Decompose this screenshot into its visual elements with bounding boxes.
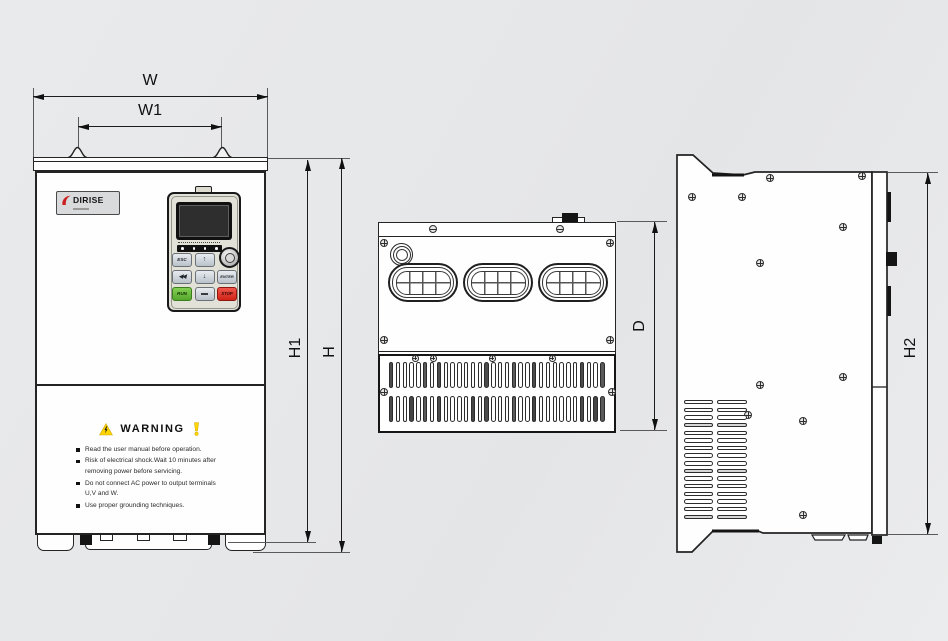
phillips-screw-icon [799, 511, 807, 519]
d-dimension-line [654, 222, 655, 430]
warning-item: Do not connect AC power to output termin… [75, 479, 221, 501]
vent-slot [717, 499, 747, 503]
side-vent-column [717, 400, 747, 519]
top-tab [562, 213, 578, 222]
phillips-screw-icon [688, 193, 696, 201]
vent-slot [684, 446, 713, 450]
h2-dimension-line [927, 173, 928, 534]
vent-slot [684, 499, 713, 503]
warning-item: Read the user manual before operation. [75, 445, 221, 456]
knockout-grid [396, 271, 451, 295]
vent-slot [389, 396, 393, 422]
keypad-screen [179, 205, 229, 237]
vent-slot [587, 396, 591, 422]
vent-slot [491, 362, 495, 388]
warning-item: Use proper grounding techniques. [75, 501, 221, 512]
vent-slot [525, 396, 529, 422]
vent-slot [444, 362, 448, 388]
knockout-grid [471, 271, 526, 295]
multifunction-label-bar [201, 293, 208, 295]
vent-slot [717, 415, 747, 419]
vent-slot [684, 507, 713, 511]
vent-slot [717, 400, 747, 404]
phillips-screw-icon [606, 239, 614, 247]
vent-slot [717, 492, 747, 496]
warning-item: Risk of electrical shock.Wait 10 minutes… [75, 456, 221, 478]
h1-dimension-label: H1 [287, 331, 305, 365]
dimension-drawing: W W1 [0, 0, 948, 641]
vent-slot [484, 362, 488, 388]
vent-slot [553, 396, 557, 422]
bottom-foot [812, 535, 845, 540]
skirt-clip-right [208, 534, 220, 545]
vent-slot [717, 438, 747, 442]
led-indicator [215, 247, 218, 250]
skirt-tooth [137, 534, 150, 541]
top-mounting-plate [33, 157, 268, 171]
front-view: W W1 [0, 0, 360, 600]
vent-slot [464, 362, 468, 388]
skirt-clip-left [80, 534, 92, 545]
vent-slot [684, 408, 713, 412]
vent-slot [389, 362, 393, 388]
vent-slot [478, 396, 482, 422]
vent-slot [587, 362, 591, 388]
vent-slot [416, 396, 420, 422]
front-panel-latch [886, 252, 897, 266]
cable-knockouts [388, 263, 608, 302]
vent-slot [450, 362, 454, 388]
vent-slot [505, 362, 509, 388]
run-button[interactable]: RUN [172, 287, 192, 301]
vent-slot [684, 515, 713, 519]
vent-slot [684, 484, 713, 488]
phillips-screw-icon [858, 172, 866, 180]
vent-slot [450, 396, 454, 422]
h-extension-top [268, 158, 350, 159]
shift-button[interactable]: ◀◀ [172, 270, 192, 284]
brand-subtext-bar [73, 208, 89, 210]
d-dimension-label: D [631, 309, 649, 343]
vent-slot [457, 362, 461, 388]
keypad-display [176, 202, 232, 240]
skirt-tooth [100, 534, 113, 541]
led-strip [177, 245, 222, 252]
front-panel-edge [872, 172, 887, 535]
vent-slot [518, 362, 522, 388]
vent-slot [559, 396, 563, 422]
vent-slot [539, 362, 543, 388]
cable-knockout [538, 263, 608, 302]
vent-slot [423, 362, 427, 388]
vent-slot [717, 461, 747, 465]
bottom-clip [872, 536, 882, 544]
vent-slot [437, 396, 441, 422]
phillips-screw-icon [380, 239, 388, 247]
warning-list: Read the user manual before operation. R… [75, 445, 221, 512]
phillips-screw-icon [430, 355, 437, 362]
vent-slot [580, 362, 584, 388]
slotted-screw-icon [556, 225, 564, 233]
vent-slot [580, 396, 584, 422]
vent-slot [498, 396, 502, 422]
keypad-knob[interactable] [219, 247, 240, 268]
bottom-foot [848, 535, 868, 540]
h-extension-bottom [253, 552, 350, 553]
phillips-screw-icon [608, 388, 616, 396]
vent-slot [593, 396, 597, 422]
w-dimension-label: W [133, 72, 167, 90]
h-dimension-line [341, 158, 342, 552]
enter-button[interactable]: ENTER [217, 270, 237, 284]
vent-slot [684, 453, 713, 457]
vent-slot [566, 396, 570, 422]
vent-slot [532, 362, 536, 388]
vent-slot [430, 362, 434, 388]
vent-slot [684, 476, 713, 480]
phillips-screw-icon [489, 355, 496, 362]
vent-slot [396, 362, 400, 388]
vent-slot [505, 396, 509, 422]
h2-dimension-label: H2 [902, 331, 920, 365]
vent-slot [498, 362, 502, 388]
vent-slot [593, 362, 597, 388]
vent-slot [457, 396, 461, 422]
vent-slot [717, 507, 747, 511]
vent-slot [717, 476, 747, 480]
knockout-grid [546, 271, 601, 295]
vent-slot [484, 396, 488, 422]
top-plate-inner-line [34, 161, 267, 162]
vent-slot [546, 362, 550, 388]
up-button[interactable]: ↑ [195, 253, 215, 267]
h1-dimension-line [307, 160, 308, 542]
phillips-screw-icon [839, 223, 847, 231]
vent-slot [444, 396, 448, 422]
vent-slot [539, 396, 543, 422]
vent-slot [403, 362, 407, 388]
phillips-screw-icon [380, 336, 388, 344]
vent-slot [512, 362, 516, 388]
top-vent-row [389, 362, 605, 388]
vent-slot [684, 469, 713, 473]
w1-dimension-label: W1 [133, 102, 167, 120]
h1-extension-bottom [228, 542, 316, 543]
exclamation-icon [192, 422, 201, 436]
cable-knockout [388, 263, 458, 302]
vent-slot [717, 446, 747, 450]
vent-slot [409, 362, 413, 388]
vent-slot [471, 396, 475, 422]
phillips-screw-icon [412, 355, 419, 362]
led-tick-labels [178, 242, 220, 244]
vent-slot [430, 396, 434, 422]
w1-dimension-line [78, 126, 222, 127]
vent-slot [559, 362, 563, 388]
vent-slot [717, 453, 747, 457]
front-panel-rib [888, 286, 892, 316]
slotted-screw-icon [429, 225, 437, 233]
vent-slot [403, 396, 407, 422]
vent-slot [600, 396, 604, 422]
brand-name: DIRISE [73, 196, 104, 205]
vent-slot [600, 362, 604, 388]
keypad: ESC ↑ ◀◀ ↓ ENTER RUN STOP [167, 186, 242, 313]
vent-slot [471, 362, 475, 388]
warning-title: WARNING [120, 423, 184, 435]
vent-slot [573, 396, 577, 422]
phillips-screw-icon [606, 336, 614, 344]
warning-title-row: WARNING [40, 421, 260, 437]
vent-slot [553, 362, 557, 388]
multifunction-button[interactable] [195, 287, 215, 301]
vent-slot [512, 396, 516, 422]
vent-slot [573, 362, 577, 388]
vent-slot [684, 492, 713, 496]
brand-logo-plate: DIRISE [56, 191, 120, 215]
vent-slot [684, 415, 713, 419]
top-strip-line [379, 236, 615, 237]
w-dimension-line [33, 96, 268, 97]
side-vent-column [684, 400, 713, 519]
vent-slot [566, 362, 570, 388]
vent-slot [717, 408, 747, 412]
vent-slot [491, 396, 495, 422]
vent-slot [684, 431, 713, 435]
vent-slot [416, 362, 420, 388]
vent-slot [717, 469, 747, 473]
vent-slot [478, 362, 482, 388]
cable-knockout [463, 263, 533, 302]
vent-slot [684, 461, 713, 465]
phillips-screw-icon [380, 388, 388, 396]
vent-slot [546, 396, 550, 422]
vent-slot [717, 431, 747, 435]
phillips-screw-icon [738, 193, 746, 201]
esc-button[interactable]: ESC [172, 253, 192, 267]
skirt-tooth [173, 534, 187, 541]
vent-slot [717, 515, 747, 519]
bottom-skirt-left [37, 534, 74, 551]
phillips-screw-icon [799, 417, 807, 425]
vent-slot [684, 438, 713, 442]
vent-slot [423, 396, 427, 422]
vent-slot [518, 396, 522, 422]
vent-slot [532, 396, 536, 422]
brand-swoosh-icon [61, 195, 71, 206]
led-indicator [204, 247, 207, 250]
led-indicator [181, 247, 184, 250]
stop-button[interactable]: STOP [217, 287, 237, 301]
vent-slot [717, 423, 747, 427]
phillips-screw-icon [549, 355, 556, 362]
front-cover-divider [36, 384, 265, 386]
h-dimension-label: H [321, 335, 339, 369]
vent-slot [684, 400, 713, 404]
led-indicator [193, 247, 196, 250]
phillips-screw-icon [766, 174, 774, 182]
vent-slot [717, 484, 747, 488]
front-panel-rib [888, 192, 892, 222]
electric-hazard-icon [99, 423, 113, 436]
top-view-divider-a [378, 351, 616, 352]
vent-slot [525, 362, 529, 388]
vent-slot [396, 396, 400, 422]
phillips-screw-icon [839, 373, 847, 381]
vent-slot [437, 362, 441, 388]
vent-slot [684, 423, 713, 427]
vent-slot [464, 396, 468, 422]
h2-extension-bottom [888, 534, 938, 535]
phillips-screw-icon [756, 381, 764, 389]
phillips-screw-icon [756, 259, 764, 267]
top-vent-row [389, 396, 605, 422]
down-button[interactable]: ↓ [195, 270, 215, 284]
vent-slot [409, 396, 413, 422]
